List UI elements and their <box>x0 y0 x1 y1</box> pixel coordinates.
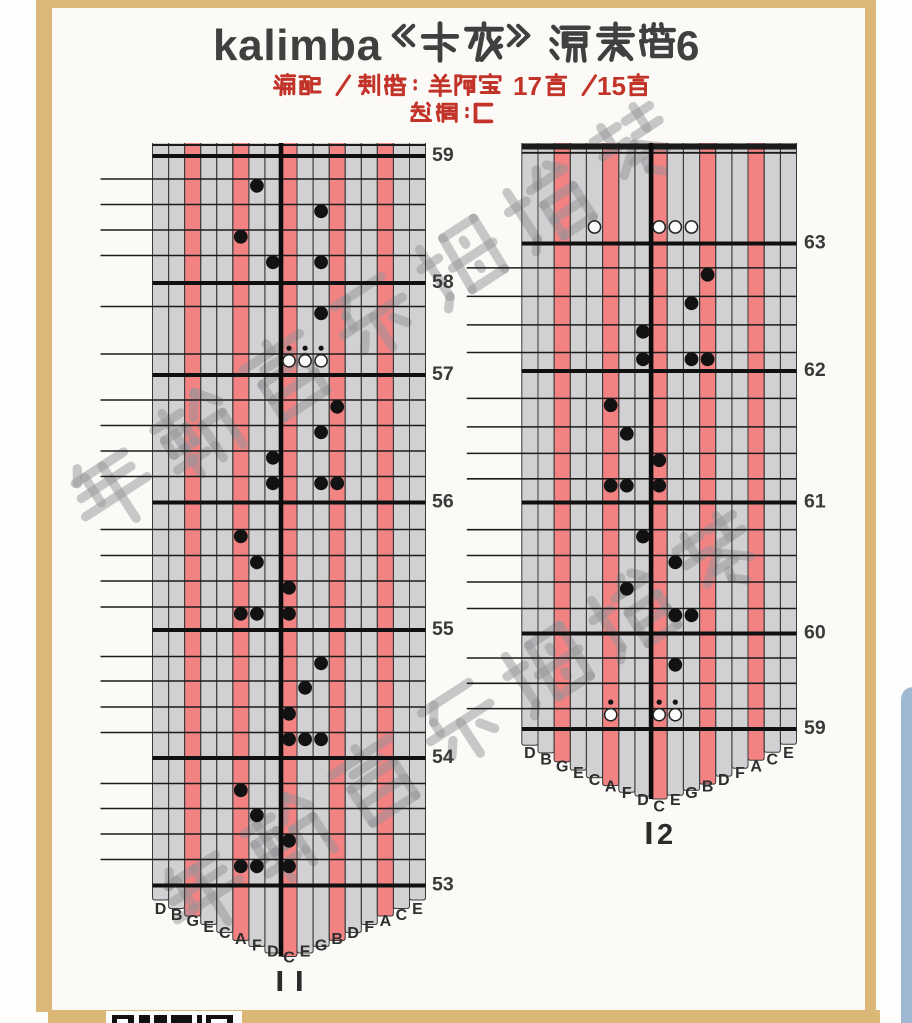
svg-text:D: D <box>347 925 359 942</box>
svg-text:15: 15 <box>597 71 626 101</box>
svg-text:C: C <box>589 772 601 789</box>
svg-text:6: 6 <box>676 22 699 69</box>
svg-text:55: 55 <box>432 618 454 640</box>
svg-text:A: A <box>235 931 247 948</box>
svg-text:A: A <box>750 758 762 775</box>
svg-text:59: 59 <box>432 144 454 166</box>
svg-text:E: E <box>203 919 214 936</box>
svg-text:F: F <box>364 919 374 936</box>
svg-text:54: 54 <box>432 746 454 768</box>
svg-text:E: E <box>573 765 584 782</box>
svg-text:B: B <box>171 907 183 924</box>
svg-text:A: A <box>380 913 392 930</box>
svg-text:E: E <box>300 943 311 960</box>
svg-text:57: 57 <box>432 363 454 385</box>
svg-text:17: 17 <box>513 71 542 101</box>
svg-text:59: 59 <box>804 717 826 739</box>
svg-text:D: D <box>637 792 649 809</box>
svg-text:B: B <box>331 931 343 948</box>
svg-text:G: G <box>186 913 198 930</box>
svg-text:F: F <box>622 785 632 802</box>
svg-text:G: G <box>315 937 327 954</box>
svg-text:E: E <box>670 792 681 809</box>
svg-text:C: C <box>767 752 779 769</box>
svg-text:F: F <box>252 937 262 954</box>
svg-text:C: C <box>396 907 408 924</box>
svg-text:E: E <box>412 901 423 918</box>
svg-text:60: 60 <box>804 621 826 643</box>
svg-text:C: C <box>653 799 665 816</box>
svg-text:A: A <box>605 779 617 796</box>
svg-text:56: 56 <box>432 490 454 512</box>
svg-text:D: D <box>718 772 730 789</box>
svg-text:D: D <box>155 901 167 918</box>
svg-text:F: F <box>735 765 745 782</box>
svg-text:61: 61 <box>804 490 826 512</box>
svg-text:63: 63 <box>804 231 826 253</box>
svg-text:E: E <box>783 745 794 762</box>
svg-text:58: 58 <box>432 271 454 293</box>
svg-text:G: G <box>556 758 568 775</box>
svg-text:B: B <box>540 752 552 769</box>
svg-text:D: D <box>267 943 279 960</box>
svg-text:2: 2 <box>657 819 673 851</box>
svg-text:C: C <box>283 949 295 966</box>
svg-text:53: 53 <box>432 873 454 895</box>
svg-text:D: D <box>524 745 536 762</box>
svg-text:G: G <box>685 785 697 802</box>
svg-text:B: B <box>702 779 714 796</box>
svg-text:kalimba: kalimba <box>213 21 382 70</box>
svg-text:C: C <box>219 925 231 942</box>
svg-text:62: 62 <box>804 359 826 381</box>
